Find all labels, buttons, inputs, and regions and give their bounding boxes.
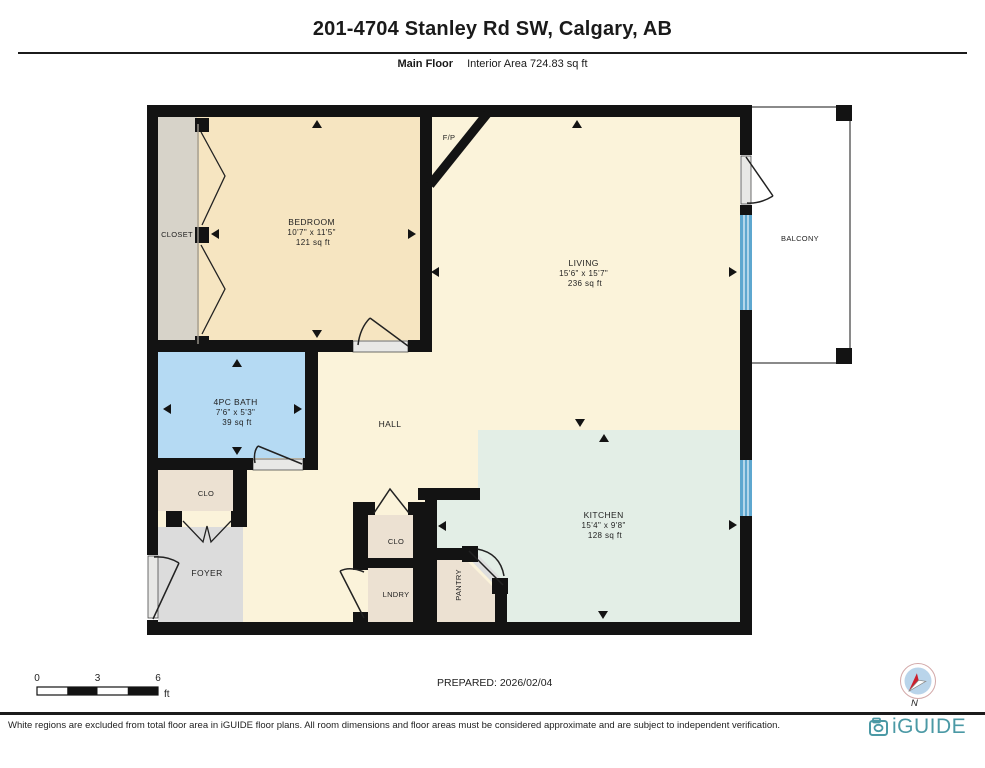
scale-tick-0: 0 xyxy=(34,673,40,684)
bedroom-door-sill xyxy=(353,341,408,352)
footer-disclaimer: White regions are excluded from total fl… xyxy=(8,720,848,731)
iguide-logo-text: iGUIDE xyxy=(892,715,966,739)
pantry-label: PANTRY xyxy=(454,569,463,601)
scale-bar-segment xyxy=(128,687,158,695)
prepared-date-label: PREPARED: 2026/02/04 xyxy=(437,677,552,689)
iguide-camera-icon xyxy=(868,716,890,738)
fireplace-label: F/P xyxy=(443,133,456,142)
compass: N xyxy=(901,664,936,710)
balcony-label: BALCONY xyxy=(781,234,819,243)
entry-door-sill xyxy=(148,556,158,618)
compass-north-label: N xyxy=(911,698,918,709)
room-clo-bath-area xyxy=(158,470,233,511)
foyer-label: FOYER xyxy=(191,568,222,578)
camera-lens xyxy=(875,725,883,731)
iguide-logo: iGUIDE xyxy=(868,715,966,739)
footer-divider xyxy=(0,712,985,715)
room-closet-area xyxy=(158,117,197,340)
scale-unit-label: ft xyxy=(164,689,170,700)
scale-tick-6: 6 xyxy=(155,673,161,684)
clo-bath-label: CLO xyxy=(198,489,214,498)
scale-bar-segment xyxy=(67,687,97,695)
laundry-label: LNDRY xyxy=(383,590,410,599)
scale-tick-3: 3 xyxy=(95,673,101,684)
hall-label: HALL xyxy=(379,419,402,429)
clo-hall-label: CLO xyxy=(388,537,404,546)
living-side-window xyxy=(740,215,752,310)
floor-plan: BEDROOM 10'7" x 11'5" 121 sq ft LIVING 1… xyxy=(0,0,985,768)
kitchen-window xyxy=(740,460,752,516)
closet-label: CLOSET xyxy=(161,230,193,239)
scale-bar: 0 3 6 ft xyxy=(34,673,170,700)
kitchen-label: KITCHEN 15'4" x 9'8" 128 sq ft xyxy=(582,510,629,540)
